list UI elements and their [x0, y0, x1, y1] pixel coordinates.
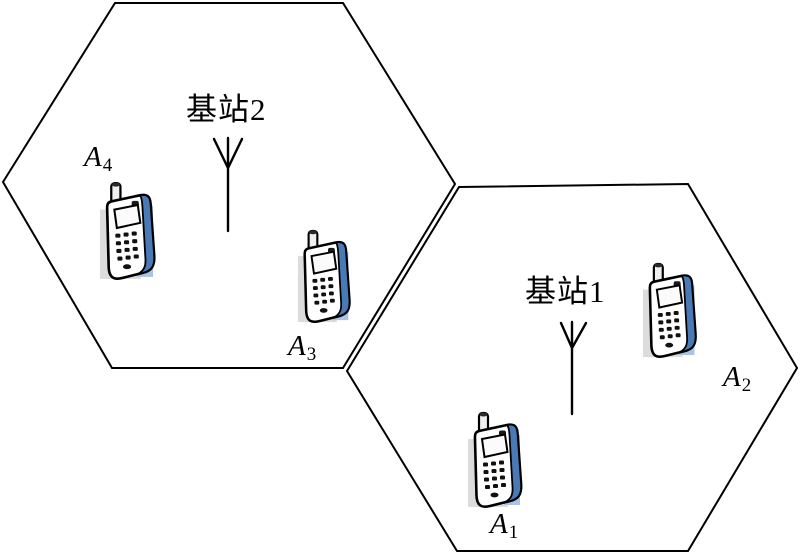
base-station-2-label: 基站2 [186, 94, 267, 125]
phone-a1-label-sub: 1 [509, 522, 519, 543]
phone-a3-label-base: A [288, 330, 306, 362]
phone-a4-label-base: A [84, 141, 102, 173]
diagram-canvas: 基站2 基站1 A4 A3 A1 A2 [0, 0, 800, 556]
network-diagram [0, 0, 800, 556]
phone-a4-label-sub: 4 [103, 155, 113, 176]
phone-a1-label-base: A [490, 508, 508, 540]
phone-a3-label: A3 [288, 332, 316, 361]
phone-a2-label-sub: 2 [742, 375, 752, 396]
phone-a2-label: A2 [723, 363, 751, 392]
phone-a3-label-sub: 3 [307, 344, 317, 365]
base-station-1-label: 基站1 [525, 276, 606, 307]
phone-a4-label: A4 [84, 143, 112, 172]
phone-a1-label: A1 [490, 510, 518, 539]
phone-a2-label-base: A [723, 361, 741, 393]
